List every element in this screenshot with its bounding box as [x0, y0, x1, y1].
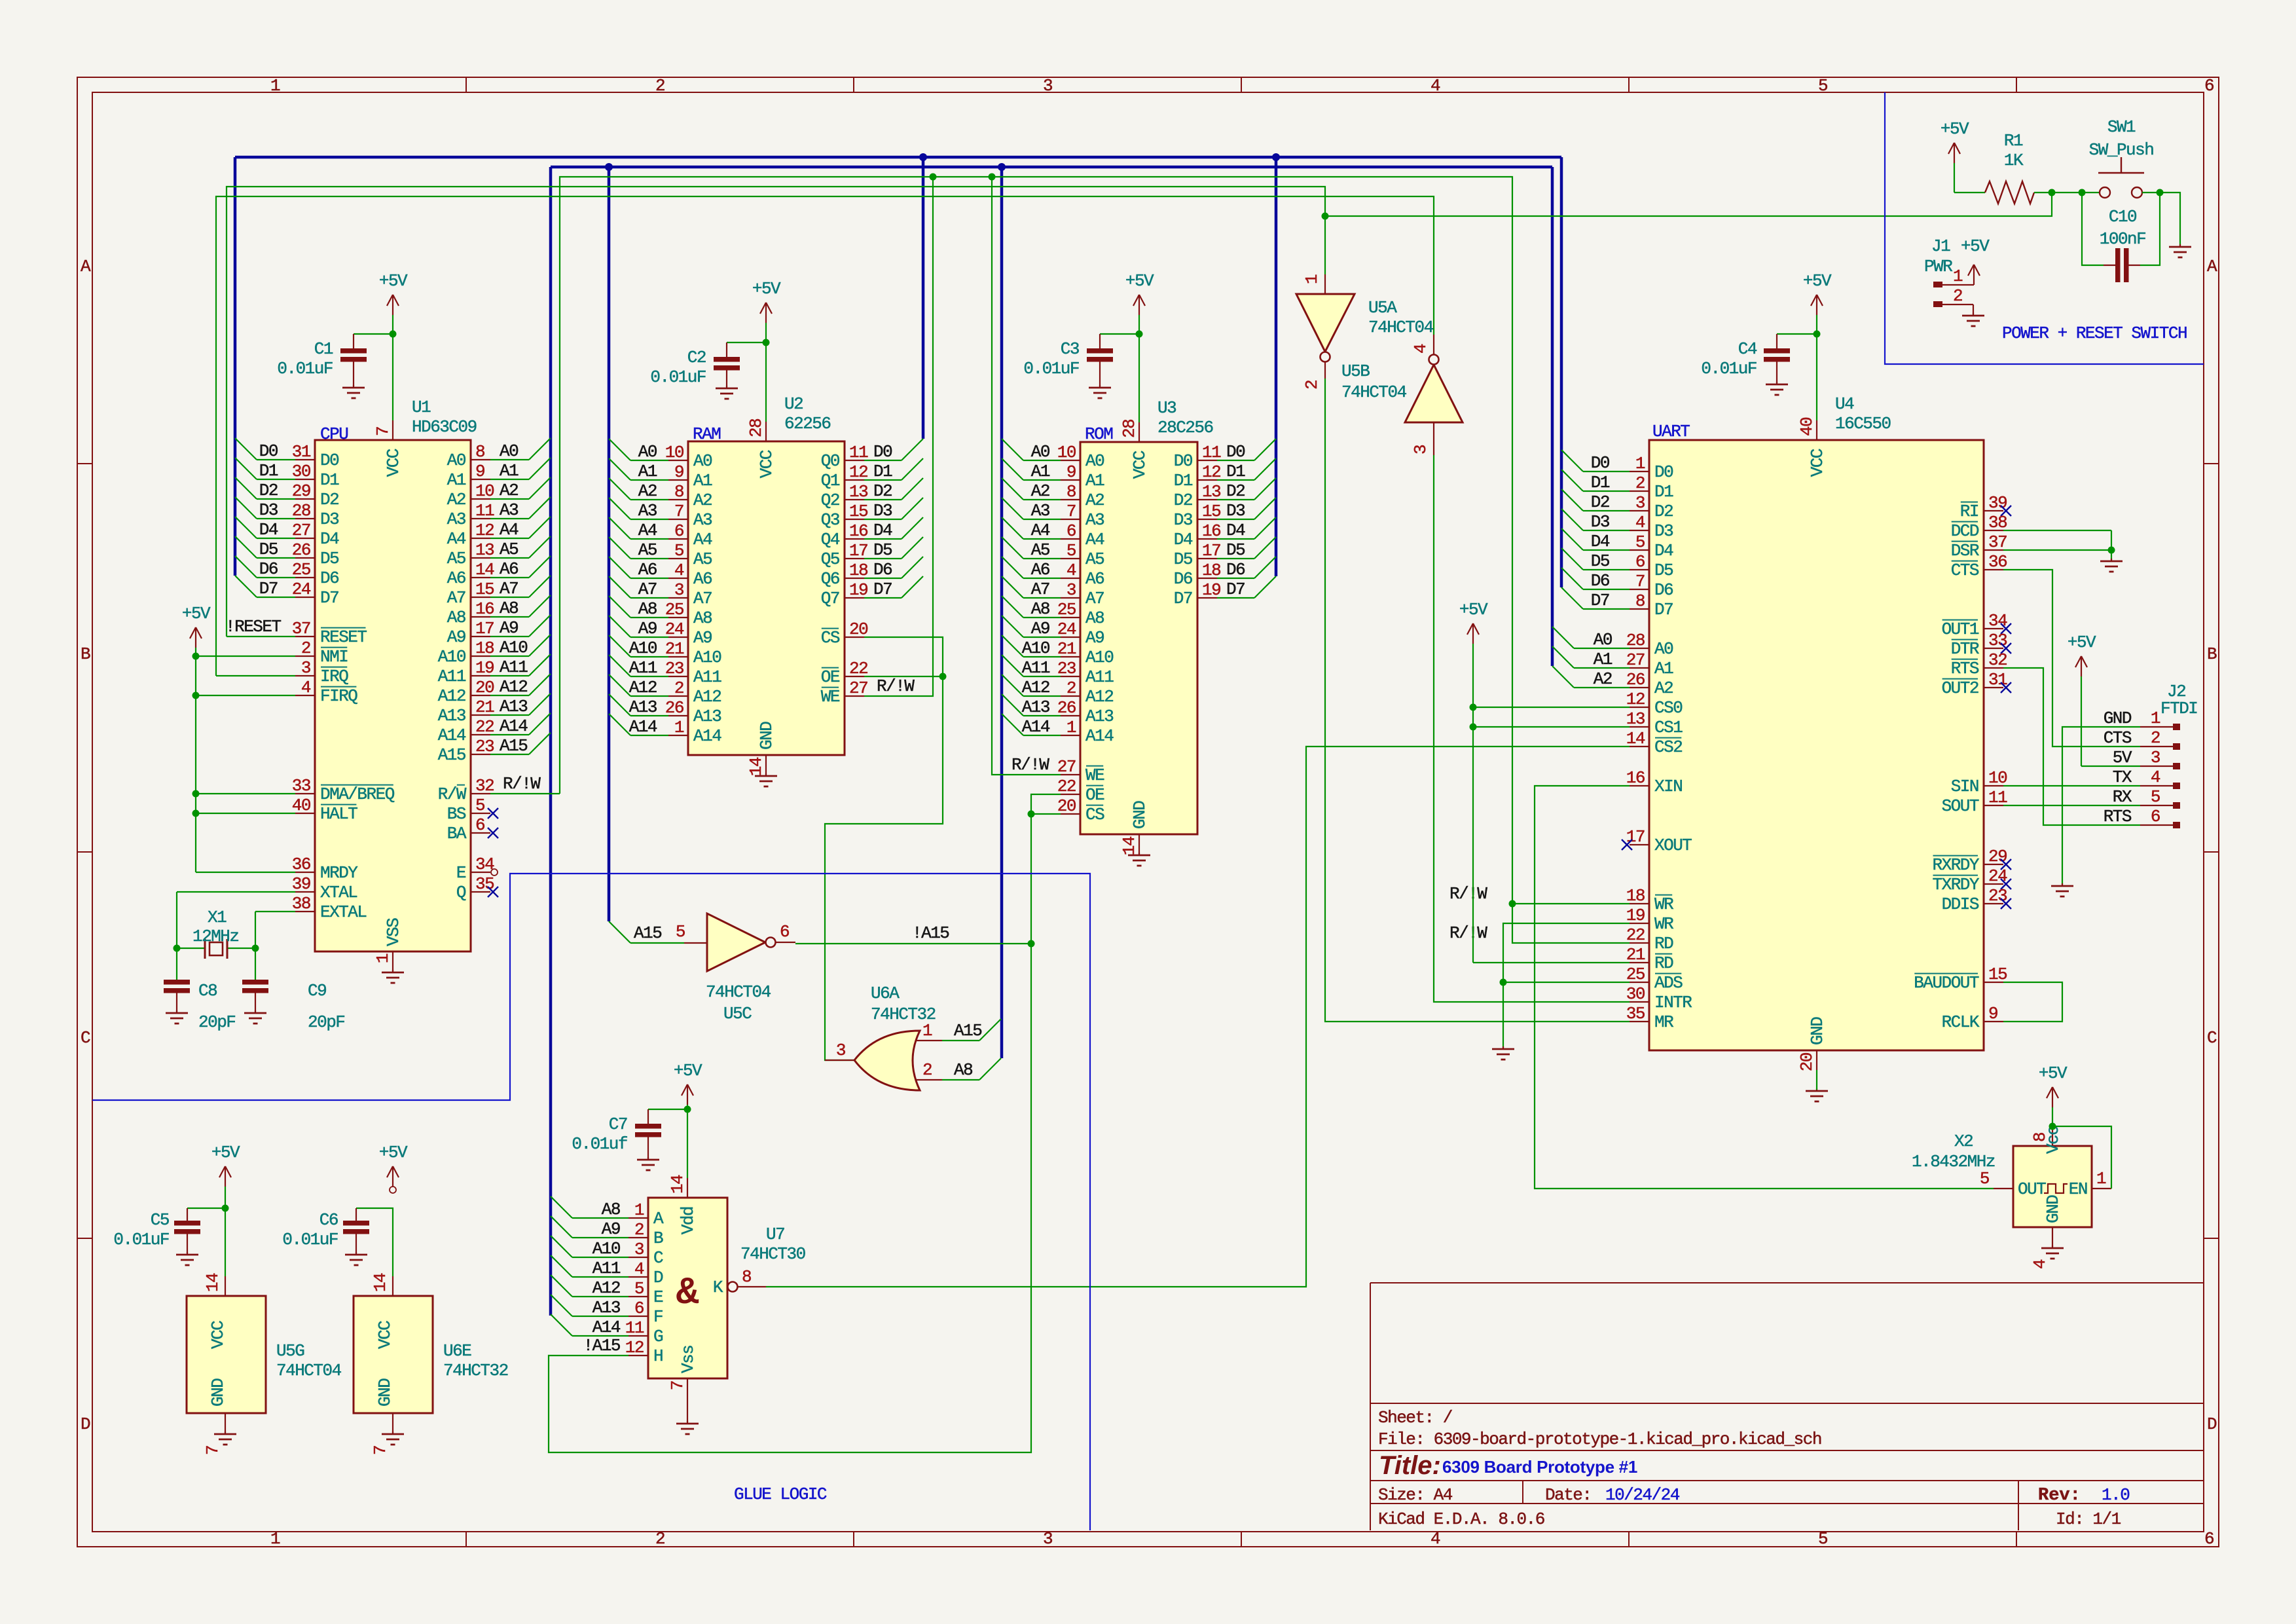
svg-text:+5V: +5V — [752, 279, 781, 299]
svg-text:D4: D4 — [1654, 541, 1673, 561]
svg-text:A15: A15 — [500, 736, 527, 756]
svg-text:A0: A0 — [1085, 451, 1104, 471]
svg-text:22: 22 — [475, 717, 494, 737]
svg-text:15: 15 — [1202, 502, 1220, 521]
svg-text:7: 7 — [373, 427, 393, 436]
svg-text:3: 3 — [1635, 493, 1645, 513]
svg-text:5: 5 — [1818, 1529, 1827, 1549]
svg-text:7: 7 — [371, 1446, 390, 1455]
svg-text:D4: D4 — [1174, 530, 1193, 549]
svg-text:D6: D6 — [1591, 571, 1609, 591]
svg-text:Q5: Q5 — [821, 549, 839, 569]
svg-text:4: 4 — [1430, 1529, 1440, 1549]
svg-text:WR: WR — [1654, 914, 1673, 934]
svg-text:37: 37 — [292, 619, 310, 638]
svg-text:22: 22 — [1626, 925, 1645, 945]
svg-text:100nF: 100nF — [2100, 229, 2146, 249]
svg-text:U7: U7 — [766, 1225, 784, 1244]
svg-text:+5V: +5V — [379, 271, 408, 291]
svg-text:3: 3 — [301, 658, 310, 678]
svg-text:19: 19 — [849, 580, 867, 600]
svg-text:A: A — [81, 257, 91, 276]
svg-text:A3: A3 — [693, 510, 712, 530]
svg-text:A6: A6 — [1031, 560, 1049, 580]
svg-text:12: 12 — [625, 1338, 644, 1357]
svg-text:4: 4 — [1411, 344, 1430, 354]
svg-text:D6: D6 — [320, 568, 338, 588]
svg-text:+5V: +5V — [2039, 1063, 2068, 1083]
svg-text:39: 39 — [292, 874, 310, 894]
svg-text:ROM: ROM — [1085, 424, 1112, 444]
svg-text:5: 5 — [1818, 76, 1827, 96]
svg-text:NMI: NMI — [320, 647, 348, 667]
svg-text:C9: C9 — [308, 981, 326, 1001]
svg-text:D2: D2 — [1174, 490, 1192, 510]
svg-text:A15: A15 — [634, 923, 661, 943]
svg-text:D0: D0 — [1226, 442, 1245, 462]
svg-text:Q4: Q4 — [821, 530, 840, 549]
svg-text:A14: A14 — [592, 1318, 621, 1337]
svg-text:RTS: RTS — [2104, 807, 2132, 826]
svg-text:C: C — [653, 1248, 663, 1268]
svg-text:Q0: Q0 — [821, 451, 839, 471]
svg-text:3: 3 — [1043, 1529, 1052, 1549]
svg-text:1: 1 — [373, 953, 393, 963]
svg-text:U6E: U6E — [443, 1341, 471, 1361]
svg-text:27: 27 — [849, 678, 867, 698]
svg-text:28: 28 — [746, 419, 766, 437]
svg-text:A8: A8 — [1085, 608, 1104, 628]
svg-text:+5V: +5V — [1459, 600, 1488, 619]
svg-text:HALT: HALT — [320, 804, 357, 824]
svg-text:A4: A4 — [1085, 530, 1104, 549]
svg-text:D5: D5 — [320, 549, 338, 568]
svg-text:A9: A9 — [602, 1219, 620, 1239]
svg-text:A13: A13 — [500, 697, 527, 716]
svg-text:CTS: CTS — [1951, 561, 1979, 580]
svg-text:U2: U2 — [784, 394, 803, 414]
svg-text:2: 2 — [922, 1060, 932, 1080]
svg-text:6: 6 — [634, 1299, 644, 1318]
svg-text:DCD: DCD — [1951, 521, 1979, 541]
svg-text:A12: A12 — [693, 687, 721, 707]
svg-text:A5: A5 — [693, 549, 712, 569]
svg-text:A8: A8 — [1031, 599, 1049, 619]
svg-text:6: 6 — [1066, 521, 1076, 541]
svg-text:Q6: Q6 — [821, 569, 839, 589]
svg-text:4: 4 — [1635, 513, 1645, 532]
svg-text:A0: A0 — [638, 442, 657, 462]
svg-text:D1: D1 — [1654, 482, 1673, 502]
svg-text:DSR: DSR — [1951, 541, 1979, 561]
svg-text:6: 6 — [1635, 552, 1645, 572]
svg-text:HD63C09: HD63C09 — [412, 417, 477, 437]
svg-text:28: 28 — [1626, 631, 1645, 650]
svg-text:6: 6 — [475, 815, 484, 835]
svg-text:5: 5 — [1635, 532, 1645, 552]
svg-text:X1: X1 — [208, 908, 227, 927]
svg-text:WE: WE — [821, 687, 840, 707]
svg-text:D1: D1 — [1591, 473, 1610, 492]
svg-text:ADS: ADS — [1654, 973, 1683, 993]
svg-text:36: 36 — [292, 855, 310, 874]
svg-text:U5G: U5G — [276, 1341, 304, 1361]
svg-text:2: 2 — [655, 76, 665, 96]
svg-text:26: 26 — [292, 540, 310, 560]
svg-text:CTS: CTS — [2104, 728, 2132, 748]
svg-text:RX: RX — [2113, 787, 2132, 807]
svg-text:SW_Push: SW_Push — [2089, 140, 2154, 160]
svg-text:FTDI: FTDI — [2160, 699, 2197, 718]
svg-text:7: 7 — [1066, 502, 1076, 521]
svg-text:A5: A5 — [638, 540, 657, 560]
svg-text:D5: D5 — [873, 540, 892, 560]
svg-text:B: B — [653, 1228, 663, 1248]
svg-text:17: 17 — [849, 541, 867, 561]
svg-text:GND: GND — [1130, 801, 1150, 829]
svg-text:74HCT04: 74HCT04 — [1368, 318, 1434, 337]
svg-text:Size: A4: Size: A4 — [1378, 1485, 1453, 1505]
svg-text:19: 19 — [475, 658, 494, 678]
svg-text:38: 38 — [292, 894, 310, 913]
svg-text:8: 8 — [1066, 482, 1076, 502]
svg-text:GND: GND — [2104, 709, 2132, 728]
svg-text:U1: U1 — [412, 397, 431, 417]
svg-text:GND: GND — [208, 1378, 228, 1407]
svg-text:D3: D3 — [1174, 510, 1192, 530]
svg-text:A1: A1 — [1085, 471, 1104, 490]
svg-text:31: 31 — [292, 442, 311, 462]
svg-text:6309 Board Prototype #1: 6309 Board Prototype #1 — [1442, 1457, 1637, 1477]
svg-text:D0: D0 — [1174, 451, 1192, 471]
svg-text:Date:: Date: — [1545, 1485, 1592, 1505]
svg-text:D0: D0 — [1591, 453, 1609, 473]
svg-text:11: 11 — [849, 443, 868, 462]
svg-text:A14: A14 — [438, 726, 466, 745]
svg-text:UART: UART — [1652, 422, 1690, 441]
svg-text:2: 2 — [1953, 286, 1962, 306]
svg-text:D2: D2 — [873, 481, 892, 501]
svg-text:U5C: U5C — [723, 1004, 752, 1024]
svg-text:C8: C8 — [198, 981, 217, 1001]
svg-text:GND: GND — [375, 1378, 395, 1407]
svg-text:6: 6 — [674, 521, 683, 541]
svg-text:D4: D4 — [320, 529, 339, 549]
svg-text:5: 5 — [674, 541, 683, 561]
svg-text:1: 1 — [674, 718, 684, 737]
svg-text:2: 2 — [655, 1529, 665, 1549]
svg-text:6: 6 — [2204, 1529, 2214, 1549]
svg-text:D5: D5 — [259, 540, 278, 559]
svg-text:A10: A10 — [592, 1239, 620, 1259]
svg-text:A0: A0 — [447, 451, 465, 470]
svg-text:21: 21 — [1626, 945, 1645, 965]
svg-text:OE: OE — [1085, 785, 1104, 805]
svg-text:D4: D4 — [1226, 521, 1245, 540]
svg-text:IRQ: IRQ — [320, 667, 348, 686]
svg-text:GND: GND — [757, 722, 776, 750]
svg-text:2: 2 — [634, 1220, 644, 1240]
svg-text:D3: D3 — [1654, 521, 1673, 541]
svg-text:A: A — [2207, 257, 2217, 276]
svg-text:A10: A10 — [500, 638, 527, 657]
svg-text:11: 11 — [1988, 788, 2007, 807]
svg-text:4: 4 — [634, 1259, 644, 1279]
svg-text:GND: GND — [1808, 1017, 1827, 1045]
svg-text:U5A: U5A — [1368, 298, 1397, 318]
svg-text:24: 24 — [665, 619, 684, 639]
svg-text:C2: C2 — [687, 348, 706, 367]
svg-text:GLUE LOGIC: GLUE LOGIC — [734, 1485, 827, 1504]
svg-text:A12: A12 — [438, 686, 465, 706]
svg-text:C5: C5 — [151, 1210, 169, 1230]
svg-text:A4: A4 — [447, 529, 466, 549]
svg-text:+5V: +5V — [1803, 271, 1832, 291]
svg-text:2: 2 — [2151, 728, 2160, 748]
svg-text:D3: D3 — [259, 500, 278, 520]
svg-text:D7: D7 — [1591, 591, 1609, 610]
svg-text:20: 20 — [849, 619, 867, 639]
svg-text:C10: C10 — [2109, 207, 2136, 227]
svg-text:D1: D1 — [1174, 471, 1193, 490]
svg-text:16: 16 — [1202, 521, 1220, 541]
svg-text:A10: A10 — [1022, 638, 1049, 658]
svg-text:1: 1 — [2151, 709, 2160, 728]
svg-text:3: 3 — [2151, 748, 2160, 767]
svg-text:D6: D6 — [1654, 580, 1673, 600]
svg-text:14: 14 — [203, 1273, 223, 1292]
svg-text:12: 12 — [1626, 690, 1645, 709]
svg-text:A8: A8 — [954, 1060, 972, 1080]
svg-text:VSS: VSS — [384, 918, 403, 946]
svg-text:25: 25 — [665, 600, 683, 619]
svg-text:13: 13 — [475, 540, 494, 560]
svg-text:C1: C1 — [314, 339, 333, 359]
svg-text:E: E — [456, 863, 466, 883]
svg-text:RI: RI — [1960, 502, 1978, 521]
svg-text:D4: D4 — [873, 521, 892, 540]
svg-text:74HCT04: 74HCT04 — [1341, 382, 1407, 402]
svg-text:Q7: Q7 — [821, 589, 839, 608]
svg-text:8: 8 — [742, 1267, 751, 1287]
svg-text:BAUDOUT: BAUDOUT — [1914, 973, 1979, 993]
svg-text:A5: A5 — [1031, 540, 1049, 560]
svg-text:4: 4 — [1430, 76, 1440, 96]
svg-text:A4: A4 — [638, 521, 657, 540]
svg-text:A10: A10 — [629, 638, 657, 658]
svg-text:A12: A12 — [629, 678, 657, 697]
svg-text:30: 30 — [1626, 984, 1645, 1004]
svg-text:40: 40 — [292, 796, 310, 815]
svg-text:+5V: +5V — [1941, 119, 1969, 139]
svg-text:A2: A2 — [1031, 481, 1049, 501]
svg-text:16: 16 — [1626, 768, 1645, 788]
svg-text:D4: D4 — [259, 520, 278, 540]
svg-text:GND: GND — [2043, 1195, 2063, 1223]
svg-text:A5: A5 — [447, 549, 465, 568]
svg-text:A7: A7 — [638, 580, 657, 599]
svg-text:CS: CS — [821, 628, 840, 648]
svg-text:A2: A2 — [447, 490, 465, 509]
svg-text:A13: A13 — [592, 1298, 620, 1318]
svg-text:4: 4 — [301, 678, 311, 697]
svg-text:R/!W: R/!W — [1449, 923, 1487, 943]
svg-text:1: 1 — [634, 1200, 644, 1220]
svg-text:A8: A8 — [693, 608, 712, 628]
svg-text:3: 3 — [634, 1240, 644, 1259]
svg-text:A13: A13 — [1022, 697, 1049, 717]
svg-text:Title:: Title: — [1379, 1451, 1441, 1480]
svg-text:1: 1 — [1953, 267, 1963, 286]
svg-text:R/!W: R/!W — [877, 676, 915, 696]
svg-text:A11: A11 — [693, 667, 721, 687]
svg-text:16: 16 — [475, 599, 494, 619]
svg-text:INTR: INTR — [1654, 993, 1692, 1012]
svg-text:19: 19 — [1626, 906, 1645, 925]
svg-text:G: G — [653, 1327, 663, 1346]
svg-text:DTR: DTR — [1951, 639, 1979, 659]
svg-text:Vdd: Vdd — [678, 1207, 698, 1234]
svg-text:A11: A11 — [438, 667, 466, 686]
svg-text:D2: D2 — [1654, 502, 1673, 521]
svg-text:2: 2 — [1302, 380, 1322, 390]
svg-text:A1: A1 — [693, 471, 712, 490]
svg-text:17: 17 — [1202, 541, 1220, 561]
svg-text:10: 10 — [1988, 768, 2007, 788]
svg-text:17: 17 — [475, 619, 494, 638]
svg-text:5: 5 — [2151, 787, 2160, 807]
svg-text:1: 1 — [270, 1529, 280, 1549]
svg-text:D7: D7 — [873, 580, 892, 599]
svg-text:74HCT04: 74HCT04 — [706, 982, 771, 1002]
svg-text:6: 6 — [780, 922, 789, 942]
svg-text:62256: 62256 — [784, 414, 831, 434]
svg-text:2: 2 — [1635, 473, 1645, 493]
svg-text:A6: A6 — [638, 560, 657, 580]
svg-text:D0: D0 — [320, 451, 338, 470]
svg-text:D0: D0 — [259, 441, 278, 461]
svg-text:!A15: !A15 — [912, 923, 949, 943]
svg-text:1: 1 — [270, 76, 280, 96]
svg-text:A12: A12 — [1022, 678, 1049, 697]
svg-text:30: 30 — [292, 462, 310, 481]
svg-text:&: & — [676, 1272, 699, 1315]
svg-text:D1: D1 — [259, 461, 278, 481]
svg-text:CS2: CS2 — [1654, 737, 1682, 757]
svg-text:EN: EN — [2069, 1179, 2087, 1199]
svg-text:74HCT32: 74HCT32 — [871, 1005, 936, 1024]
svg-text:14: 14 — [668, 1175, 687, 1194]
svg-text:A6: A6 — [447, 568, 465, 588]
svg-text:D0: D0 — [873, 442, 892, 462]
svg-text:D7: D7 — [259, 579, 278, 599]
svg-text:D6: D6 — [1174, 569, 1192, 589]
svg-text:74HCT30: 74HCT30 — [740, 1244, 805, 1264]
svg-text:VCC: VCC — [1130, 451, 1150, 479]
svg-text:BS: BS — [447, 804, 466, 824]
svg-text:D7: D7 — [1226, 580, 1245, 599]
svg-text:CS0: CS0 — [1654, 698, 1682, 718]
svg-text:A: A — [653, 1209, 664, 1228]
svg-text:F: F — [653, 1307, 663, 1327]
svg-text:23: 23 — [665, 659, 683, 678]
svg-text:A12: A12 — [1085, 687, 1113, 707]
svg-text:A3: A3 — [447, 509, 465, 529]
svg-text:A8: A8 — [638, 599, 657, 619]
svg-text:0.01uF: 0.01uF — [277, 359, 333, 378]
svg-text:FIRQ: FIRQ — [320, 686, 357, 706]
svg-text:4: 4 — [2151, 767, 2160, 787]
svg-text:2: 2 — [1066, 678, 1076, 698]
svg-text:10: 10 — [475, 481, 494, 501]
svg-text:D3: D3 — [320, 509, 338, 529]
svg-text:CPU: CPU — [320, 424, 348, 444]
svg-text:A11: A11 — [629, 658, 657, 678]
svg-text:A3: A3 — [1031, 501, 1049, 521]
svg-text:0.01uF: 0.01uF — [282, 1230, 338, 1249]
svg-text:20pF: 20pF — [308, 1012, 344, 1032]
svg-text:8: 8 — [1635, 591, 1645, 611]
svg-text:8: 8 — [674, 482, 683, 502]
svg-text:9: 9 — [674, 462, 683, 482]
svg-text:3: 3 — [1411, 445, 1430, 454]
svg-text:X2: X2 — [1954, 1132, 1973, 1151]
svg-text:MR: MR — [1654, 1012, 1673, 1032]
svg-text:D7: D7 — [1654, 600, 1673, 619]
svg-text:+5V: +5V — [211, 1143, 240, 1162]
svg-text:D6: D6 — [259, 559, 278, 579]
svg-text:26: 26 — [665, 698, 683, 718]
svg-text:14: 14 — [1626, 729, 1645, 748]
svg-text:A7: A7 — [1085, 589, 1104, 608]
svg-text:25: 25 — [1626, 965, 1645, 984]
svg-text:XTAL: XTAL — [320, 883, 357, 902]
svg-text:RAM: RAM — [693, 424, 720, 444]
svg-text:A1: A1 — [1594, 650, 1613, 669]
svg-text:C4: C4 — [1738, 339, 1757, 359]
svg-text:C: C — [2207, 1028, 2217, 1048]
svg-text:1: 1 — [1635, 454, 1645, 473]
svg-text:A15: A15 — [438, 745, 465, 765]
svg-text:3: 3 — [674, 580, 683, 600]
svg-text:3: 3 — [1043, 76, 1052, 96]
svg-text:A7: A7 — [1031, 580, 1049, 599]
svg-text:21: 21 — [1057, 639, 1076, 659]
svg-text:C: C — [81, 1028, 90, 1048]
svg-text:0.01uF: 0.01uF — [1023, 359, 1079, 378]
svg-text:A1: A1 — [500, 461, 519, 481]
svg-text:5: 5 — [1066, 541, 1076, 561]
svg-text:A3: A3 — [638, 501, 657, 521]
svg-text:28: 28 — [1120, 420, 1139, 438]
svg-text:D6: D6 — [1226, 560, 1245, 580]
svg-text:VCC: VCC — [1808, 449, 1827, 477]
svg-text:A15: A15 — [954, 1021, 981, 1041]
svg-text:18: 18 — [475, 638, 494, 658]
svg-text:0.01uF: 0.01uF — [650, 367, 706, 387]
svg-text:A2: A2 — [693, 490, 712, 510]
svg-text:28: 28 — [292, 501, 310, 521]
svg-text:20pF: 20pF — [198, 1012, 235, 1032]
svg-text:A9: A9 — [1031, 619, 1049, 638]
svg-text:A14: A14 — [629, 717, 657, 737]
svg-text:DDIS: DDIS — [1942, 895, 1979, 914]
svg-text:Rev:: Rev: — [2038, 1486, 2081, 1505]
svg-text:Q3: Q3 — [821, 510, 839, 530]
svg-text:DMA/BREQ: DMA/BREQ — [320, 784, 395, 804]
svg-text:5: 5 — [1980, 1169, 1989, 1189]
svg-text:R/W: R/W — [438, 784, 467, 804]
